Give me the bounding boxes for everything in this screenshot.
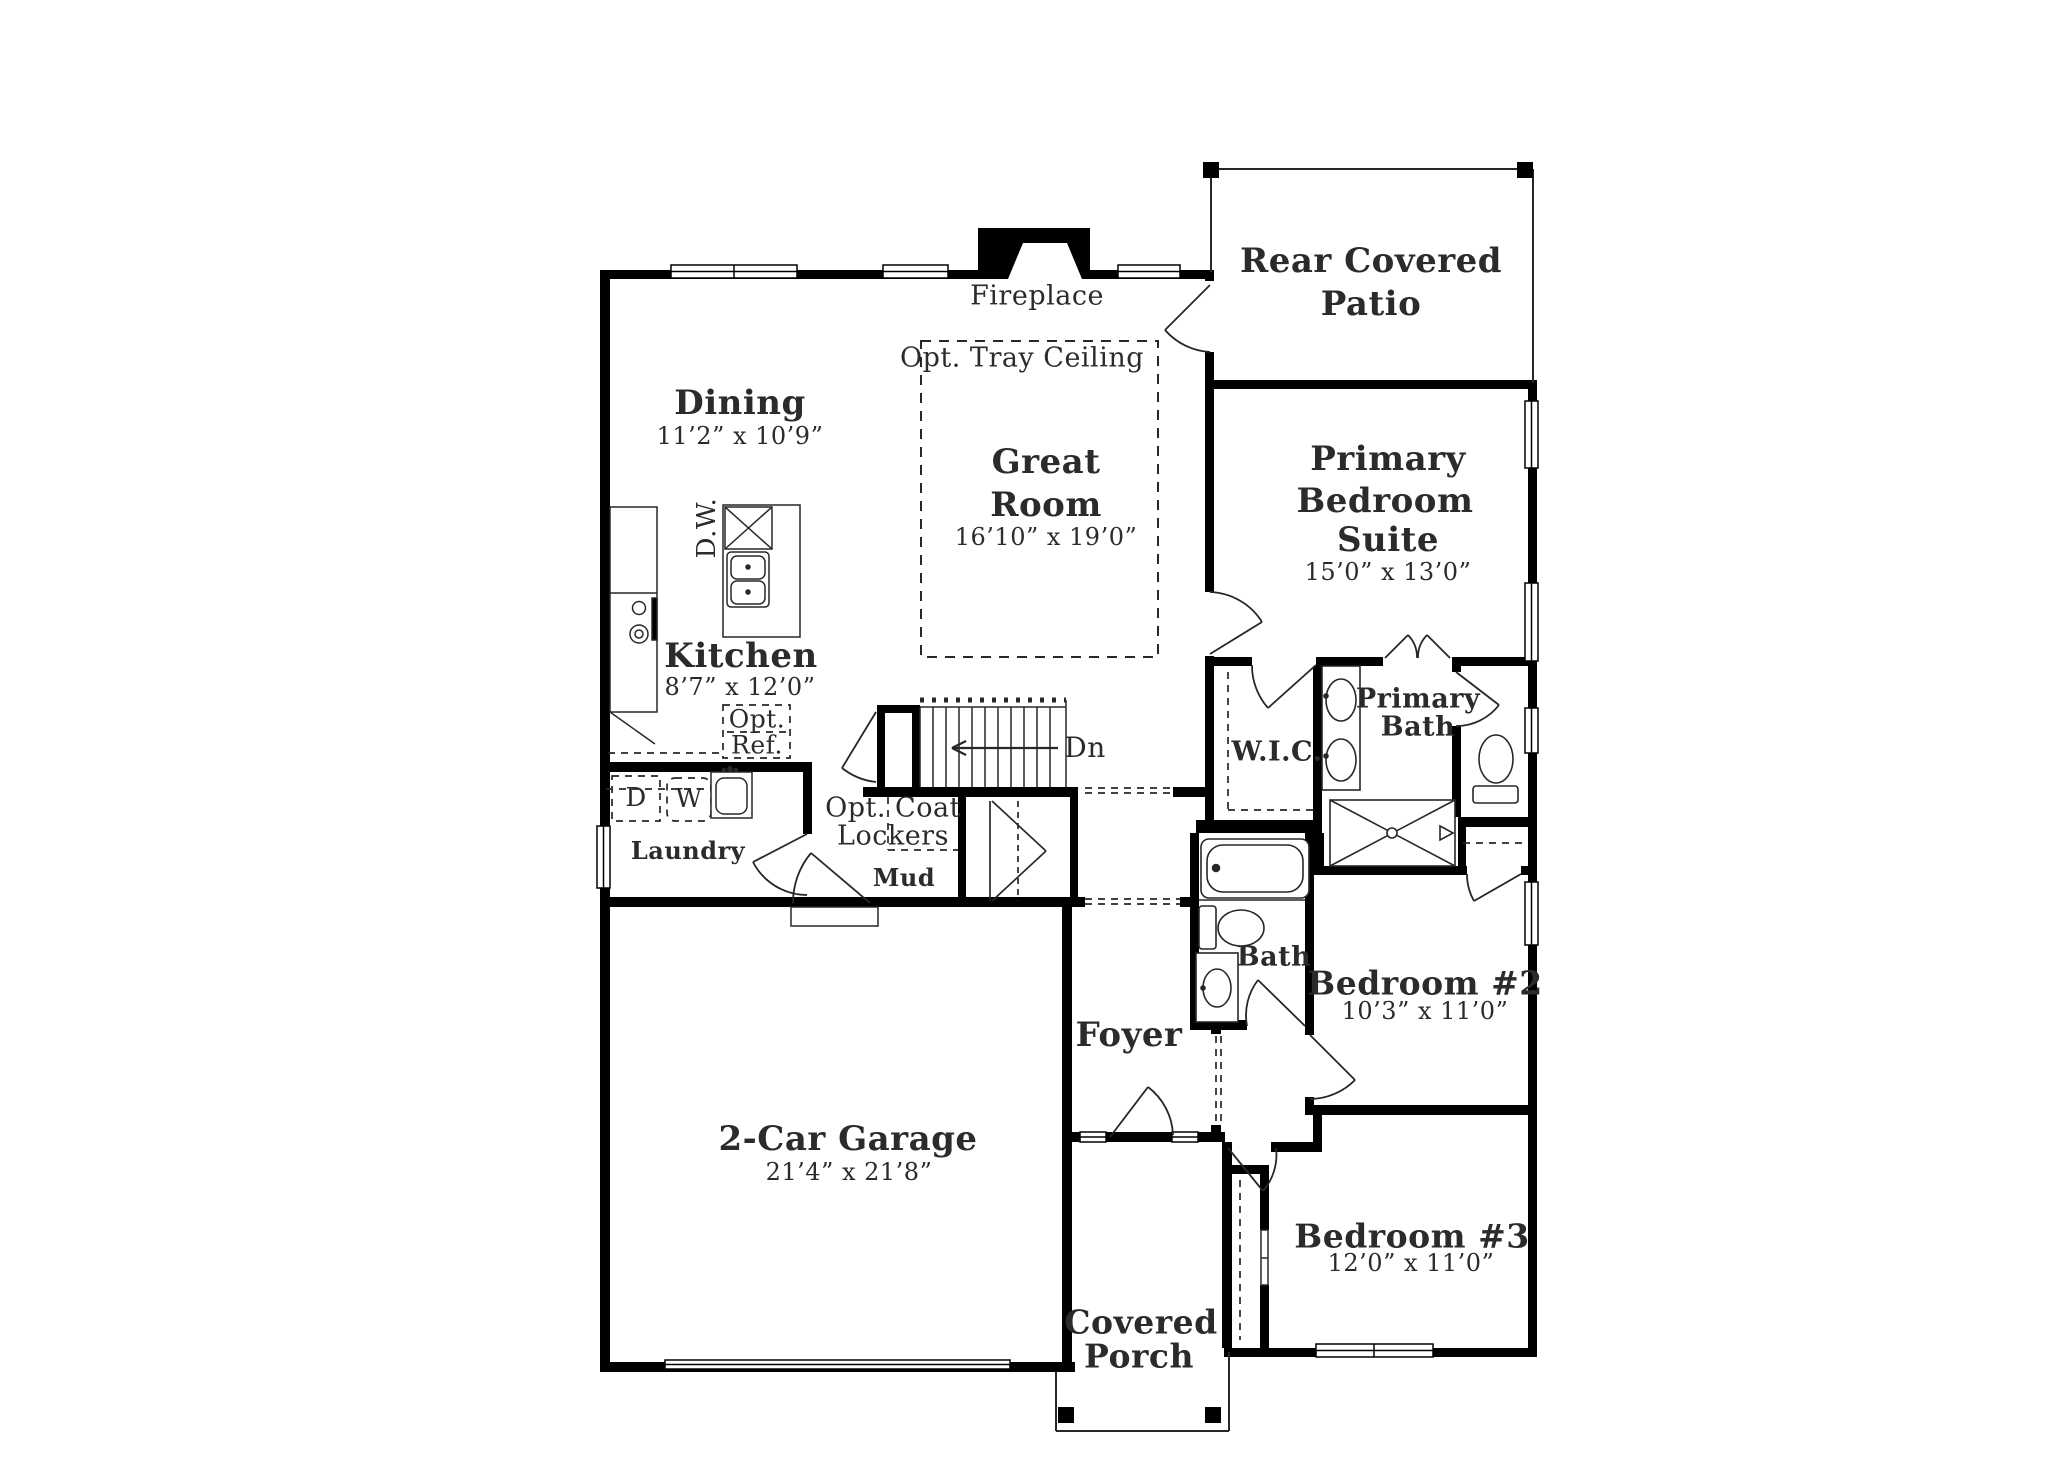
opt-ref-label-line2: Ref. <box>731 733 783 758</box>
great-room-label-line2: Room <box>990 488 1102 522</box>
garage-door <box>665 1360 1010 1369</box>
kitchen-island <box>723 505 800 637</box>
bedroom3-label: Bedroom #3 <box>1294 1220 1529 1253</box>
garage-label: 2-Car Garage <box>718 1122 977 1156</box>
primary-dims: 15’0” x 13’0” <box>1305 560 1472 584</box>
tray-ceiling-label: Opt. Tray Ceiling <box>900 345 1144 372</box>
shower-icon <box>1330 800 1455 866</box>
porch-posts <box>1058 1407 1221 1423</box>
stairs-down-arrow-icon <box>952 741 1058 755</box>
primary-label-line1: Primary <box>1310 442 1466 476</box>
patio-label-line1: Rear Covered <box>1240 244 1502 278</box>
bathtub-icon <box>1199 839 1309 900</box>
great-room-label-line1: Great <box>992 445 1101 479</box>
floor-plan-drawing <box>0 0 2069 1483</box>
understair-closet-doors <box>990 801 1046 901</box>
patio-label-line2: Patio <box>1321 287 1421 321</box>
laundry-sink <box>711 767 752 818</box>
bath-label: Bath <box>1237 944 1311 971</box>
wic-label: W.I.C. <box>1232 739 1323 766</box>
stairs <box>920 700 1066 787</box>
fireplace-icon <box>978 228 1090 279</box>
kitchen-counter <box>610 507 657 744</box>
garage-dims: 21’4” x 21’8” <box>766 1160 933 1184</box>
primary-label-line2: Bedroom <box>1297 484 1474 518</box>
stairs-down-label: Dn <box>1064 734 1105 762</box>
dishwasher-label: D.W. <box>694 498 720 559</box>
washer-label: W <box>675 786 702 812</box>
foyer-label: Foyer <box>1076 1018 1183 1052</box>
primary-vanity-sinks <box>1322 666 1360 790</box>
fireplace-label: Fireplace <box>970 283 1104 310</box>
lockers-label-line2: Lockers <box>837 823 949 850</box>
great-room-dims: 16’10” x 19’0” <box>955 525 1137 549</box>
bedroom3-dims: 12’0” x 11’0” <box>1328 1251 1495 1275</box>
porch-label-line1: Covered <box>1064 1306 1217 1339</box>
opt-ref-label-line1: Opt. <box>729 707 786 732</box>
bedroom2-dims: 10’3” x 11’0” <box>1342 999 1509 1023</box>
porch-label-line2: Porch <box>1084 1340 1194 1373</box>
dryer-label: D <box>625 785 646 811</box>
garage-stoop <box>791 907 878 926</box>
kitchen-dims: 8’7” x 12’0” <box>665 675 816 699</box>
bedroom2-label: Bedroom #2 <box>1307 967 1542 1000</box>
dining-dims: 11’2” x 10’9” <box>657 424 824 448</box>
bedroom3-closet-door <box>1261 1230 1268 1285</box>
kitchen-label: Kitchen <box>664 639 817 673</box>
floor-plan: Rear Covered Patio Dining 11’2” x 10’9” … <box>0 0 2069 1483</box>
dining-label: Dining <box>674 386 806 420</box>
mud-label: Mud <box>873 866 935 890</box>
primary-bath-label-line2: Bath <box>1381 714 1455 741</box>
primary-label-line3: Suite <box>1337 523 1439 557</box>
laundry-label: Laundry <box>631 839 745 863</box>
primary-toilet-icon <box>1473 735 1518 803</box>
bath-vanity-sink <box>1196 953 1238 1022</box>
primary-bath-label-line1: Primary <box>1356 686 1480 713</box>
lockers-label-line1: Opt. Coat <box>825 795 961 822</box>
